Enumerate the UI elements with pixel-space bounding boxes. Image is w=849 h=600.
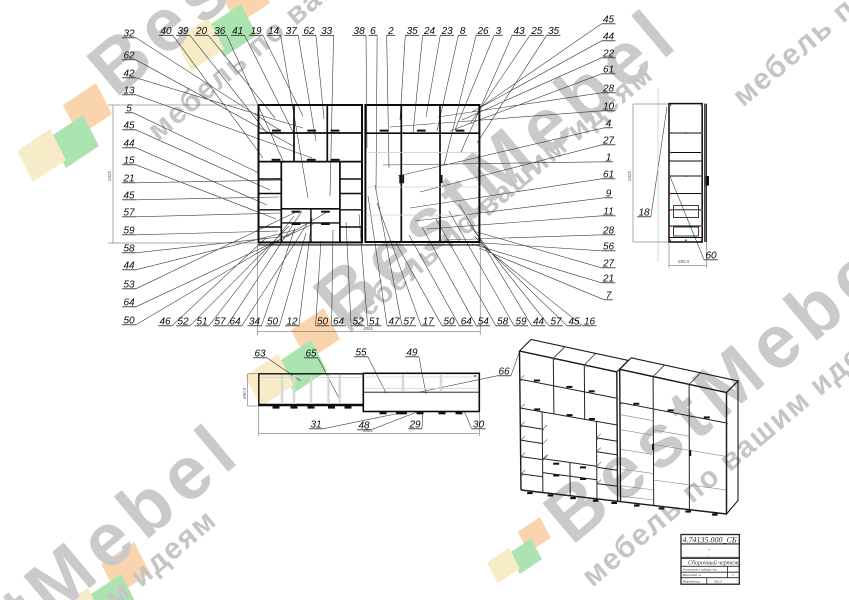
svg-text:2425: 2425 — [627, 170, 632, 182]
svg-text:690,5: 690,5 — [678, 259, 690, 264]
svg-text:2425: 2425 — [107, 170, 112, 182]
svg-text:Сборочный чертеж: Сборочный чертеж — [688, 560, 740, 567]
svg-text:4.74135.000_СБ: 4.74135.000_СБ — [683, 535, 737, 544]
svg-text:ХВ 21: ХВ 21 — [713, 579, 723, 583]
svg-text:1: 1 — [732, 573, 734, 577]
svg-text:690,5: 690,5 — [242, 387, 247, 399]
svg-text:Разработал: Разработал — [682, 579, 701, 583]
